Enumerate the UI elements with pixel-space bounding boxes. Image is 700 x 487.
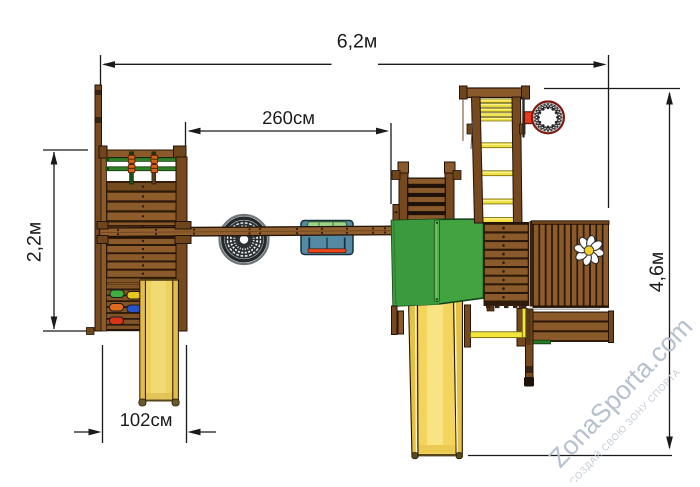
svg-text:2,2м: 2,2м xyxy=(24,222,46,263)
svg-text:102см: 102см xyxy=(120,409,173,430)
svg-text:6,2м: 6,2м xyxy=(337,31,378,53)
svg-text:4,6м: 4,6м xyxy=(646,252,668,293)
svg-text:260см: 260см xyxy=(262,107,315,128)
